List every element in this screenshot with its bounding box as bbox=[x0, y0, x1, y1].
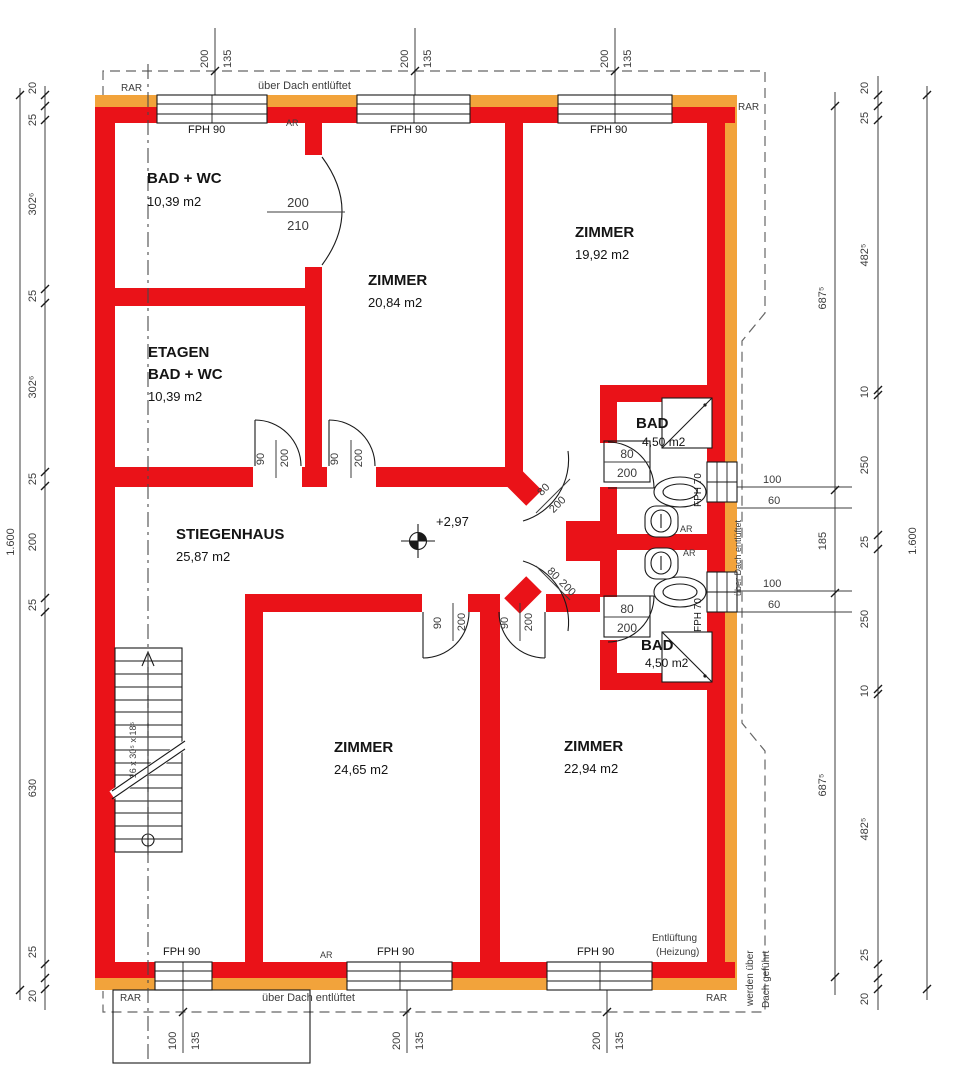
stair-dim-note: 16 x 30⁵ x 18⁵ bbox=[128, 721, 138, 778]
door-dim-diag-bottom-width: 80 bbox=[545, 565, 562, 582]
room-zimmer3-area: 24,65 m2 bbox=[334, 762, 388, 777]
dim-top-3-width: 200 bbox=[599, 50, 611, 68]
label-rar-bottom-left: RAR bbox=[120, 993, 141, 1004]
door-dim-etagen-height: 200 bbox=[279, 449, 291, 467]
dim-right-seg-5: 250 bbox=[859, 456, 871, 474]
window-label-fph90-bottom-3: FPH 90 bbox=[577, 946, 614, 958]
dim-left-seg-5: 302⁶ bbox=[27, 376, 39, 399]
label-rar-top-left: RAR bbox=[121, 83, 142, 94]
door-dim-zimmer4-height: 200 bbox=[523, 613, 535, 631]
room-zimmer4-area: 22,94 m2 bbox=[564, 761, 618, 776]
window-label-fph70-top: FPH 70 bbox=[693, 473, 704, 507]
window-label-fph70-bottom: FPH 70 bbox=[693, 598, 704, 632]
room-zimmer1-name: ZIMMER bbox=[368, 272, 427, 289]
dim-right-seg-4: 10 bbox=[859, 386, 871, 398]
dim-window-right-top-width: 100 bbox=[763, 474, 781, 486]
room-stiegenhaus-area: 25,87 m2 bbox=[176, 549, 230, 564]
dim-bottom-3-height: 135 bbox=[614, 1032, 626, 1050]
window-label-fph90-top-3: FPH 90 bbox=[590, 124, 627, 136]
floor-plan-page: BAD + WC10,39 m2ETAGENBAD + WC10,39 m2ZI… bbox=[0, 0, 961, 1080]
dim-top-1-height: 135 bbox=[222, 50, 234, 68]
wc-bottom bbox=[645, 548, 678, 579]
vent-note-right: über Dach entlüftet bbox=[733, 519, 743, 596]
room-stiegenhaus-name: STIEGENHAUS bbox=[176, 526, 284, 543]
dim-top-1-width: 200 bbox=[199, 50, 211, 68]
dim-right-seg-8: 10 bbox=[859, 685, 871, 697]
dim-left-seg-8: 25 bbox=[27, 599, 39, 611]
vent-note-roof-line2: Dach geführt bbox=[761, 951, 772, 1008]
room-zimmer2-area: 19,92 m2 bbox=[575, 247, 629, 262]
dim-window-right-top-parapet: 60 bbox=[768, 495, 780, 507]
door-dim-zimmer1-width: 90 bbox=[329, 453, 341, 465]
room-bad2-area: 4,50 m2 bbox=[645, 656, 689, 670]
room-zimmer1-area: 20,84 m2 bbox=[368, 295, 422, 310]
room-etagen-area: 10,39 m2 bbox=[148, 389, 202, 404]
dim-left-seg-9: 630 bbox=[27, 779, 39, 797]
dim-left-seg-10: 25 bbox=[27, 946, 39, 958]
door-dim-bad1-width: 80 bbox=[620, 447, 634, 461]
wc-top bbox=[645, 506, 678, 537]
dim-left-seg-7: 200 bbox=[27, 533, 39, 551]
dim-left-total: 1.600 bbox=[5, 528, 17, 556]
dim-bottom-1-height: 135 bbox=[190, 1032, 202, 1050]
dim-right-seg-9: 482⁵ bbox=[859, 818, 871, 841]
dim-bottom-3-width: 200 bbox=[591, 1032, 603, 1050]
level-marker bbox=[401, 524, 435, 558]
room-bad2-name: BAD bbox=[641, 637, 674, 654]
dim-window-right-bottom-parapet: 60 bbox=[768, 599, 780, 611]
door-dim-top-width: 200 bbox=[287, 195, 309, 210]
dim-top-3-height: 135 bbox=[622, 50, 634, 68]
window-label-fph90-top-2: FPH 90 bbox=[390, 124, 427, 136]
dim-left-seg-2: 25 bbox=[27, 114, 39, 126]
dim-right-seg-7: 250 bbox=[859, 610, 871, 628]
label-rar-top-right: RAR bbox=[738, 102, 759, 113]
door-dim-zimmer3-height: 200 bbox=[456, 613, 468, 631]
dim-top-2-height: 135 bbox=[422, 50, 434, 68]
room-etagen-name-line1: ETAGEN bbox=[148, 344, 209, 361]
window-label-fph90-top-1: FPH 90 bbox=[188, 124, 225, 136]
level-value: +2,97 bbox=[436, 514, 469, 529]
dim-right-mid-2: 185 bbox=[817, 532, 829, 550]
dim-left-seg-11: 20 bbox=[27, 990, 39, 1002]
room-etagen-name-line2: BAD + WC bbox=[148, 366, 223, 383]
dim-right-mid-3: 687⁵ bbox=[817, 774, 829, 797]
dim-right-seg-6: 25 bbox=[859, 536, 871, 548]
dim-left-seg-6: 25 bbox=[27, 473, 39, 485]
room-bad1-area: 4,50 m2 bbox=[642, 435, 686, 449]
door-dim-zimmer3-width: 90 bbox=[432, 617, 444, 629]
vent-note-roof-line1: werden über bbox=[745, 950, 756, 1007]
dim-right-seg-3: 482⁵ bbox=[859, 244, 871, 267]
vent-note-heating-line2: (Heizung) bbox=[656, 947, 699, 958]
vent-note-heating-line1: Entlüftung bbox=[652, 933, 697, 944]
dim-right-seg-1: 20 bbox=[859, 82, 871, 94]
door-dim-zimmer4-width: 90 bbox=[499, 617, 511, 629]
dim-bottom-2-width: 200 bbox=[391, 1032, 403, 1050]
dim-right-total: 1.600 bbox=[907, 527, 919, 555]
labels: BAD + WC10,39 m2ETAGENBAD + WC10,39 m2ZI… bbox=[5, 50, 919, 1050]
label-ar-right-1: AR bbox=[680, 524, 693, 534]
window-label-fph90-bottom-1: FPH 90 bbox=[163, 946, 200, 958]
door-dim-bad2-width: 80 bbox=[620, 602, 634, 616]
dim-left-seg-3: 302⁶ bbox=[27, 193, 39, 216]
door-dim-etagen-width: 90 bbox=[255, 453, 267, 465]
door-dim-bad2-height: 200 bbox=[617, 621, 637, 635]
label-ar-right-2: AR bbox=[683, 548, 696, 558]
dim-bottom-2-height: 135 bbox=[414, 1032, 426, 1050]
dim-left-seg-4: 25 bbox=[27, 290, 39, 302]
dim-right-seg-2: 25 bbox=[859, 112, 871, 124]
label-ar-top: AR bbox=[286, 118, 299, 128]
label-ar-bottom: AR bbox=[320, 950, 333, 960]
room-badwc-name: BAD + WC bbox=[147, 170, 222, 187]
room-zimmer4-name: ZIMMER bbox=[564, 738, 623, 755]
vent-note-top: über Dach entlüftet bbox=[258, 80, 351, 92]
dim-left-seg-1: 20 bbox=[27, 82, 39, 94]
room-zimmer3-name: ZIMMER bbox=[334, 739, 393, 756]
room-badwc-area: 10,39 m2 bbox=[147, 194, 201, 209]
door-dim-diag-top-width: 80 bbox=[535, 481, 552, 498]
dim-right-seg-10: 25 bbox=[859, 949, 871, 961]
window-label-fph90-bottom-2: FPH 90 bbox=[377, 946, 414, 958]
floor-plan-drawing: BAD + WC10,39 m2ETAGENBAD + WC10,39 m2ZI… bbox=[0, 0, 961, 1080]
label-rar-bottom-right: RAR bbox=[706, 993, 727, 1004]
dim-top-2-width: 200 bbox=[399, 50, 411, 68]
dim-right-seg-11: 20 bbox=[859, 993, 871, 1005]
dim-bottom-1-width: 100 bbox=[167, 1032, 179, 1050]
dim-right-mid-1: 687⁵ bbox=[817, 287, 829, 310]
door-dim-zimmer1-height: 200 bbox=[353, 449, 365, 467]
room-bad1-name: BAD bbox=[636, 415, 669, 432]
vent-note-bottom: über Dach entlüftet bbox=[262, 992, 355, 1004]
door-dim-bad1-height: 200 bbox=[617, 466, 637, 480]
dim-window-right-bottom-width: 100 bbox=[763, 578, 781, 590]
door-dim-diag-top-height: 200 bbox=[547, 494, 568, 515]
door-dim-top-height: 210 bbox=[287, 218, 309, 233]
room-zimmer2-name: ZIMMER bbox=[575, 224, 634, 241]
